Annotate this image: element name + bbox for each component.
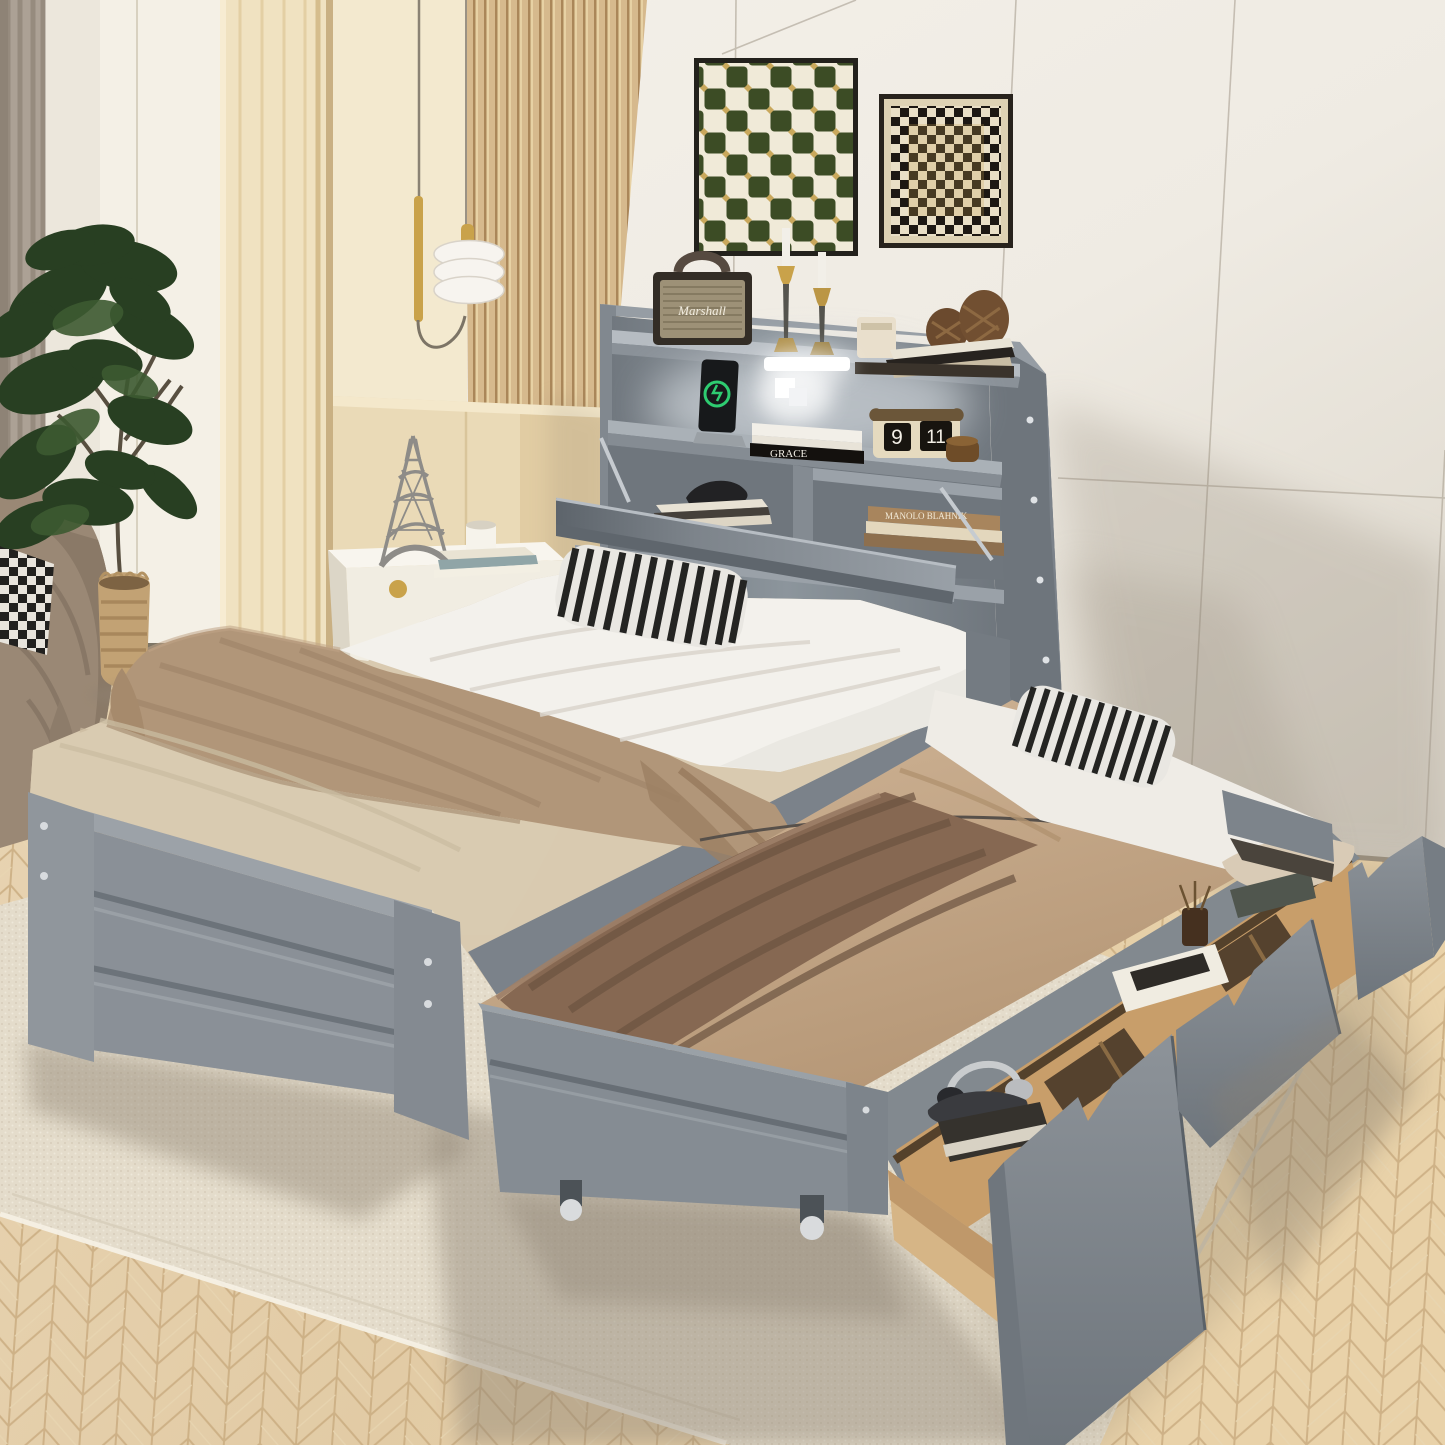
- svg-text:11: 11: [926, 427, 946, 448]
- svg-text:Marshall: Marshall: [677, 303, 726, 318]
- svg-text:GRACE: GRACE: [770, 448, 808, 460]
- svg-text:MANOLO BLAHNIK: MANOLO BLAHNIK: [885, 511, 968, 521]
- svg-text:9: 9: [891, 426, 903, 449]
